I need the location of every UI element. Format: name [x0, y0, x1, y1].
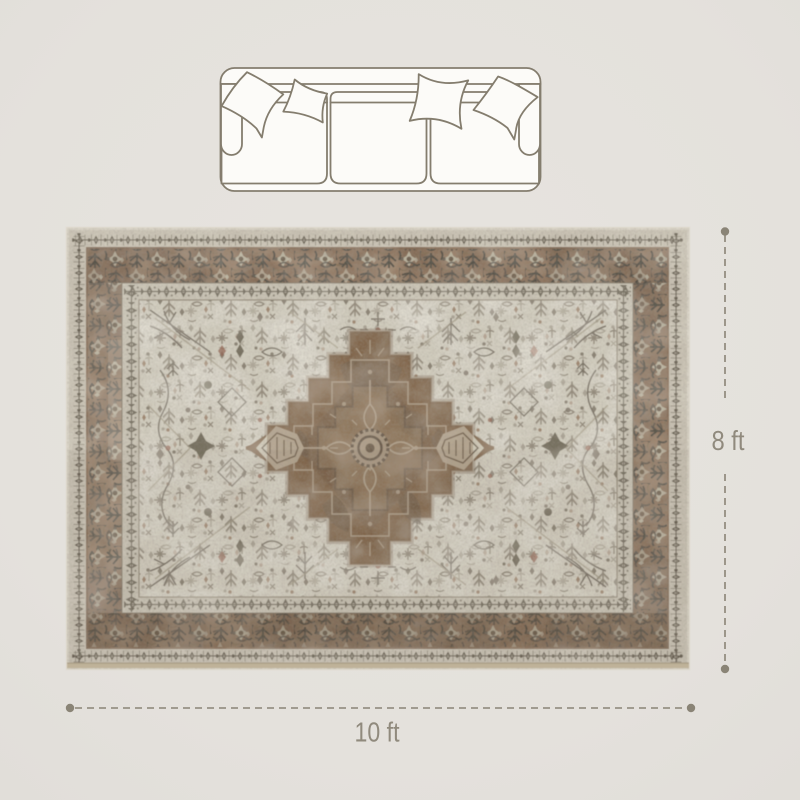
svg-text:10 ft: 10 ft [355, 717, 400, 748]
svg-text:8 ft: 8 ft [712, 425, 745, 456]
